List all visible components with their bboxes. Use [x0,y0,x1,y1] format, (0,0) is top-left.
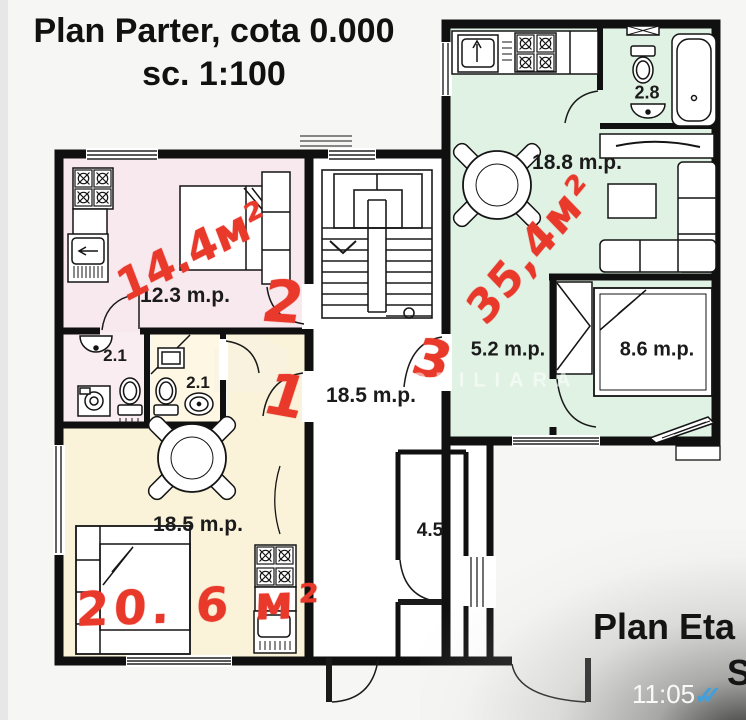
label-apt3-bedroom-area: 8.6 m.p. [620,339,694,362]
label-apt3-bath-area: 2.8 [634,83,659,104]
next-plan-subtitle: S [727,652,746,694]
next-plan-title: Plan Eta [593,606,735,648]
label-apt1-bath-area: 2.1 [186,373,210,393]
read-receipt-icon: ✓✓ [694,681,722,711]
label-apt2-bath-area: 2.1 [103,346,127,366]
plan-title: Plan Parter, cota 0.000 sc. 1:100 [16,10,412,95]
watermark-text: IMOBILIARĂ [371,370,580,393]
label-apt1-room-area: 18.5 m.p. [153,513,243,537]
message-timestamp: 11:05 [632,679,695,710]
annotation-apt1-area: 20. 6 м² [75,574,324,638]
label-storage-area: 4.5 [417,520,443,542]
plan-title-line1: Plan Parter, cota 0.000 [16,10,412,53]
photo-edge-strip [0,0,8,720]
plan-title-line2: sc. 1:100 [16,53,412,96]
chat-photo-floor-plan: Plan Parter, cota 0.000 sc. 1:100 12.3 m… [0,0,746,720]
label-apt3-corridor-area: 5.2 m.p. [471,339,545,362]
